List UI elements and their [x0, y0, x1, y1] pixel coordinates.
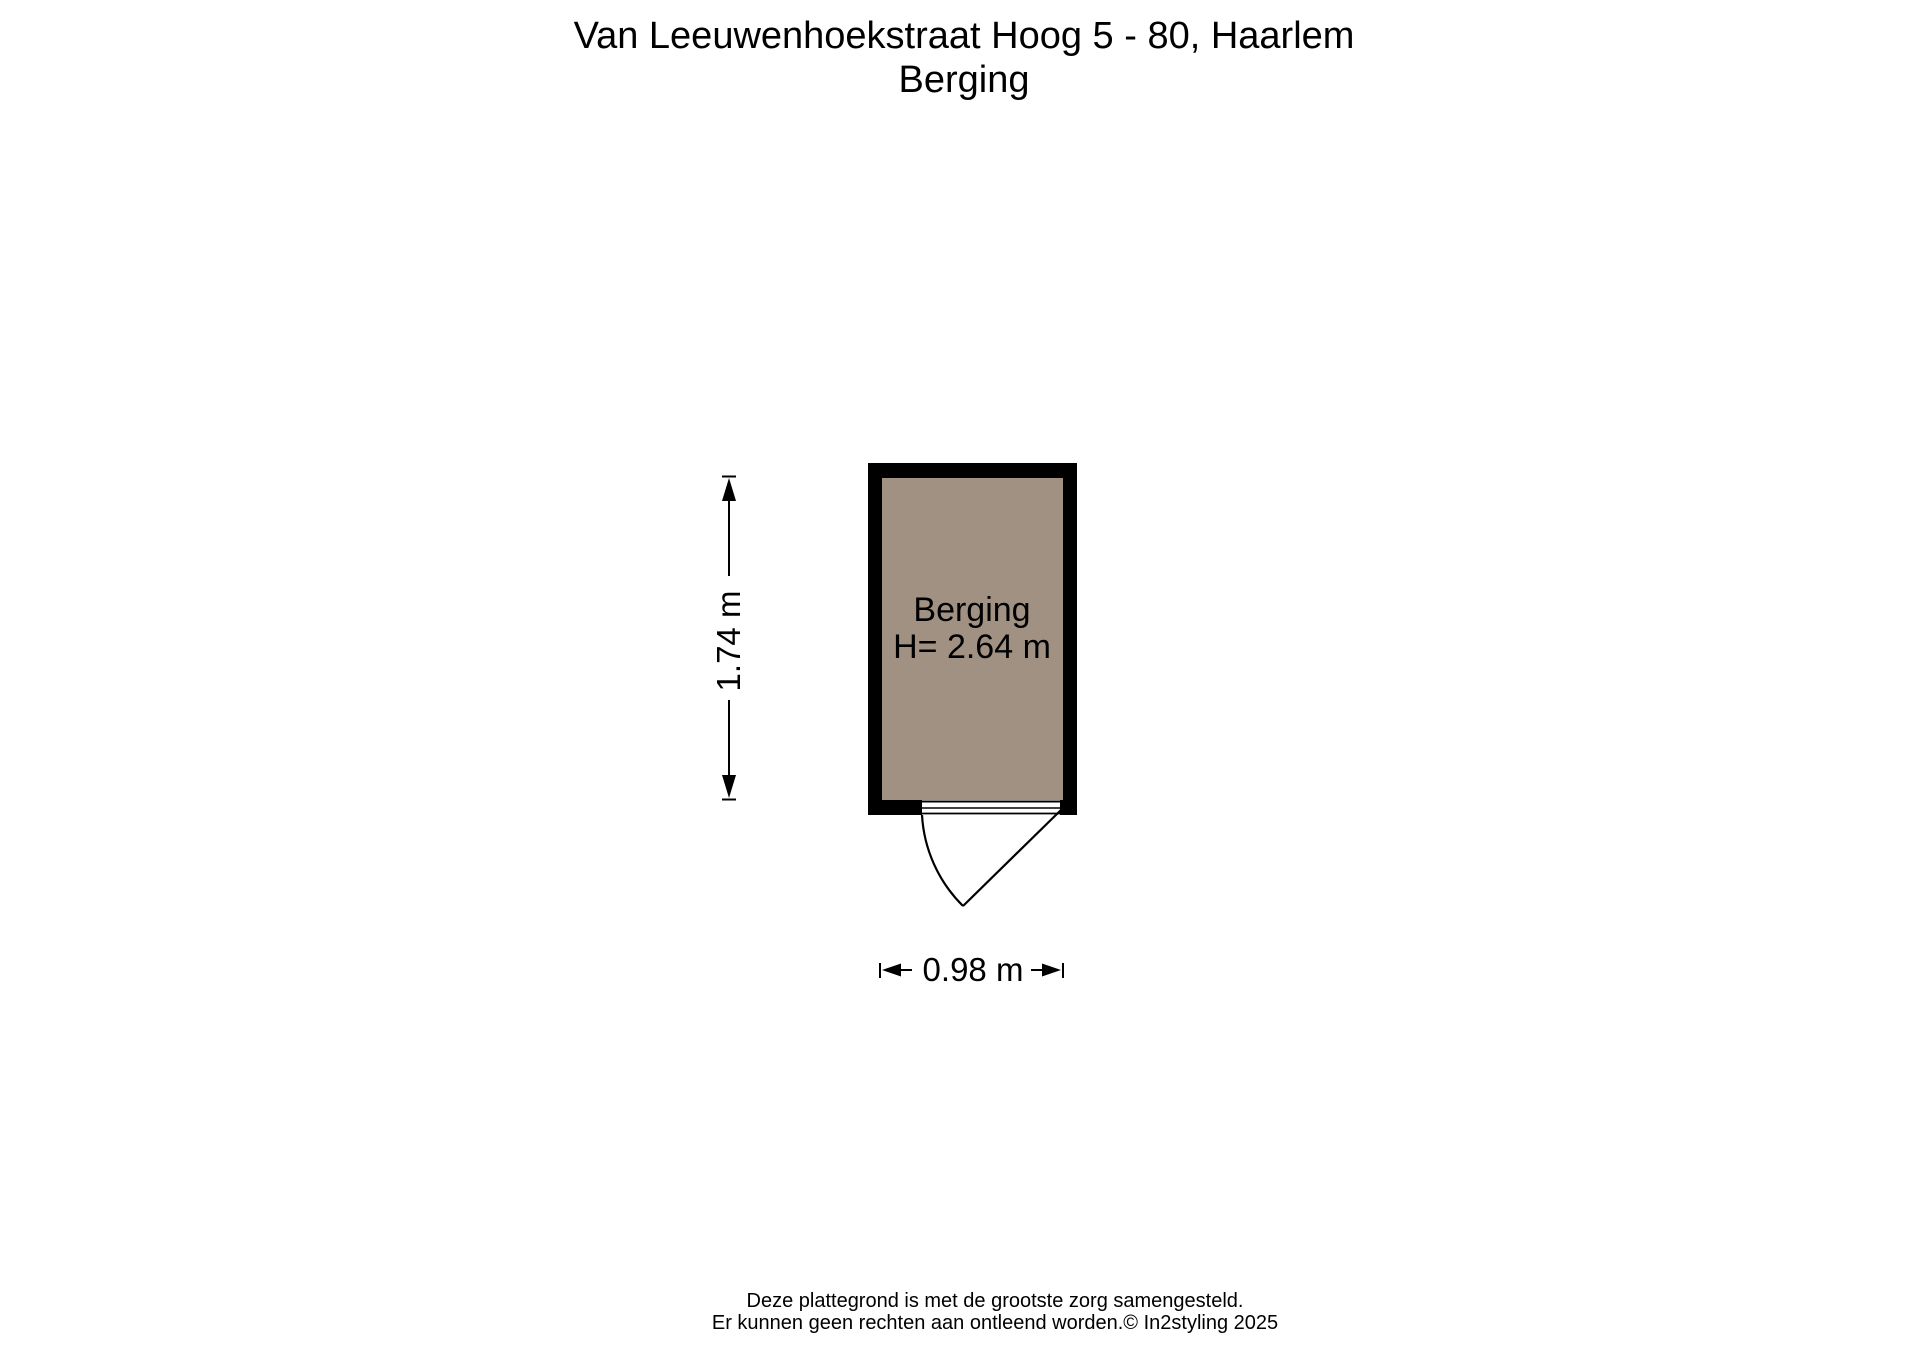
width-dimension-left-arrowhead	[882, 964, 901, 977]
width-dimension-label: 0.98 m	[923, 951, 1024, 989]
room-ceiling-height: H= 2.64 m	[893, 629, 1051, 666]
width-dimension-right-arrowhead	[1042, 964, 1061, 977]
height-dimension-top-arrowhead	[722, 478, 736, 501]
floorplan-page: Van Leeuwenhoekstraat Hoog 5 - 80, Haarl…	[0, 0, 1920, 1358]
footer-disclaimer-line1: Deze plattegrond is met de grootste zorg…	[712, 1291, 1278, 1313]
footer-disclaimer: Deze plattegrond is met de grootste zorg…	[712, 1291, 1278, 1334]
room-name: Berging	[893, 592, 1051, 629]
footer-disclaimer-line2: Er kunnen geen rechten aan ontleend word…	[712, 1313, 1278, 1335]
room-label: Berging H= 2.64 m	[893, 592, 1051, 666]
height-dimension-label: 1.74 m	[710, 591, 748, 692]
height-dimension-bottom-arrowhead	[722, 775, 736, 798]
door-leaf	[963, 810, 1061, 906]
door-swing-arc	[922, 815, 963, 906]
floorplan-drawing	[0, 0, 1920, 1358]
